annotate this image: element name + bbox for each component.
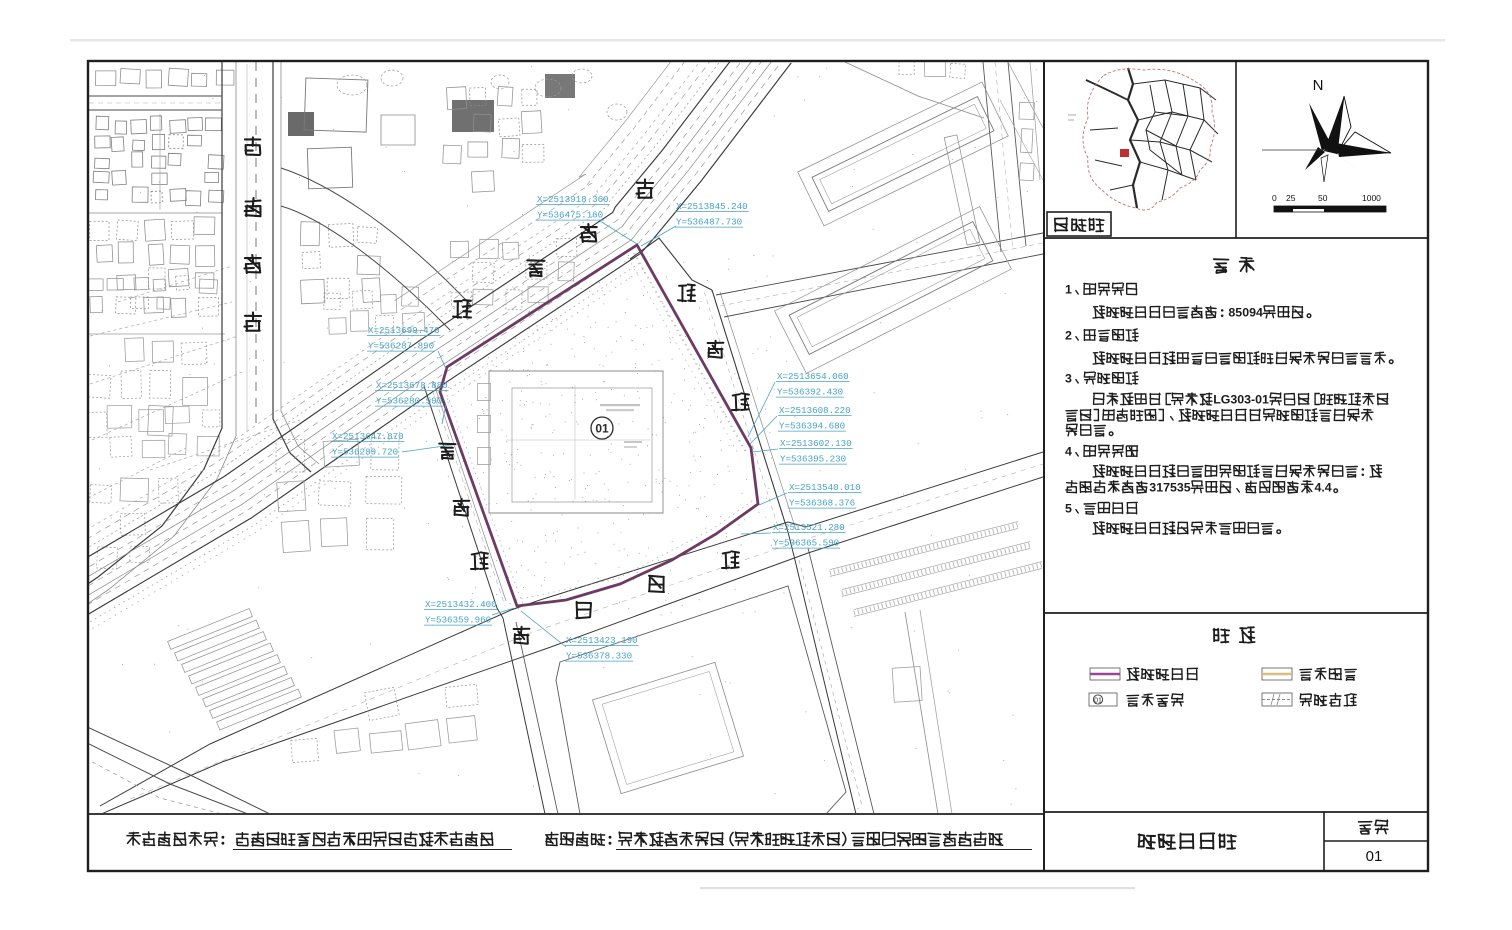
svg-text:Y=536365.590: Y=536365.590 (773, 538, 839, 549)
svg-text:1: 1 (1065, 282, 1072, 296)
svg-text:Y=536392.430: Y=536392.430 (777, 387, 843, 398)
svg-text:Y=536359.960: Y=536359.960 (425, 615, 491, 626)
svg-text:N: N (1313, 77, 1324, 94)
svg-text:X=2513521.280: X=2513521.280 (773, 522, 845, 533)
svg-text:85094: 85094 (1228, 305, 1263, 319)
svg-text:4: 4 (1065, 444, 1072, 458)
svg-text:25: 25 (1286, 193, 1296, 203)
svg-text:X=2513678.880: X=2513678.880 (376, 380, 448, 391)
svg-text:X=2513602.130: X=2513602.130 (780, 438, 852, 449)
svg-text:01: 01 (1094, 698, 1102, 705)
svg-text:Y=536395.230: Y=536395.230 (780, 454, 846, 465)
svg-text:X=2513432.400: X=2513432.400 (425, 599, 497, 610)
svg-text:LG303-01: LG303-01 (1213, 392, 1269, 406)
svg-text:1000: 1000 (1362, 193, 1381, 203)
svg-text:5: 5 (1065, 501, 1072, 515)
svg-text:01: 01 (1366, 848, 1383, 865)
svg-text:Y=536287.890: Y=536287.890 (368, 341, 434, 352)
svg-text:X=2513845.240: X=2513845.240 (676, 201, 748, 212)
svg-text:50: 50 (1318, 193, 1328, 203)
svg-text:3: 3 (1065, 371, 1072, 385)
svg-text:X=2513699.470: X=2513699.470 (368, 325, 440, 336)
svg-text:Y=536378.330: Y=536378.330 (566, 651, 632, 662)
svg-text:X=2513540.010: X=2513540.010 (789, 482, 861, 493)
svg-text:4.4: 4.4 (1315, 480, 1332, 494)
svg-text:X=2513918.360: X=2513918.360 (537, 194, 609, 205)
svg-text:X=2513423.190: X=2513423.190 (566, 635, 638, 646)
svg-text:Y=536280.590: Y=536280.590 (376, 396, 442, 407)
svg-text:Y=536394.680: Y=536394.680 (779, 421, 845, 432)
svg-text:01: 01 (595, 422, 609, 436)
svg-text:317535: 317535 (1149, 480, 1190, 494)
svg-text:X=2513654.060: X=2513654.060 (777, 371, 849, 382)
svg-text:X=2513608.220: X=2513608.220 (779, 405, 851, 416)
svg-text:Y=536475.160: Y=536475.160 (537, 210, 603, 221)
svg-text:Y=536487.730: Y=536487.730 (676, 217, 742, 228)
svg-text:Y=536289.720: Y=536289.720 (332, 447, 398, 458)
svg-text:Y=536368.376: Y=536368.376 (789, 498, 855, 509)
svg-text:0: 0 (1272, 193, 1277, 203)
svg-text:2: 2 (1065, 328, 1072, 342)
svg-text:X=2513647.870: X=2513647.870 (332, 431, 404, 442)
